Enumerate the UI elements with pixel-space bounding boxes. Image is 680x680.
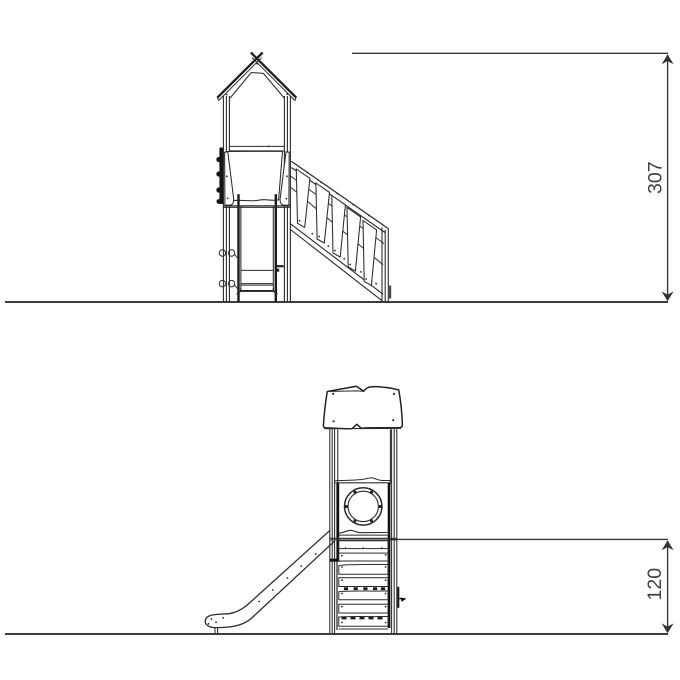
svg-text:120: 120 bbox=[644, 568, 666, 601]
svg-text:307: 307 bbox=[645, 161, 667, 194]
